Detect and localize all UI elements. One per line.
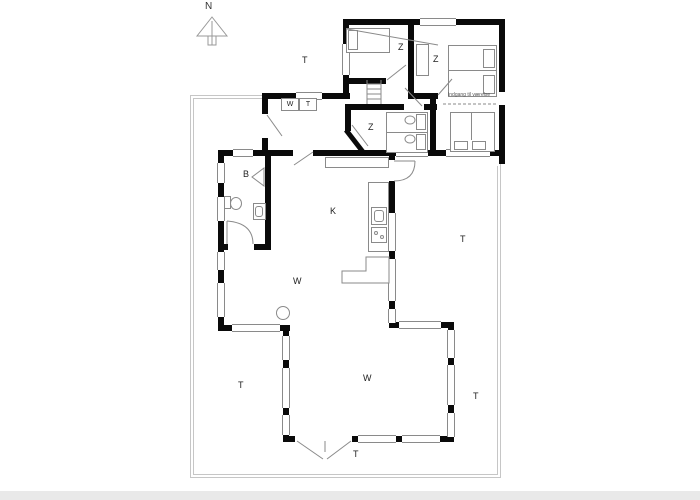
footer-strip (0, 491, 700, 500)
bunk-bed-diagonal (347, 29, 438, 45)
door-swing-entrance (267, 115, 282, 136)
living-label-upper: W (293, 277, 302, 286)
duvet (405, 116, 415, 124)
dryer-label: T (299, 98, 317, 111)
compass-label: N (205, 2, 212, 12)
shower-corner-shelf (252, 168, 264, 186)
door-arc-bathroom (227, 221, 253, 244)
bedroom3-label: Z (368, 123, 374, 132)
door-swing-bedroom3 (405, 88, 422, 106)
door-arc-terrace (394, 161, 415, 181)
terrace-label-bottom-right: T (473, 392, 479, 401)
plan-linework (0, 0, 700, 500)
duvet (405, 135, 415, 143)
kitchen-label: K (330, 207, 336, 216)
french-door-leaf-right (327, 441, 351, 459)
french-door-leaf-left (297, 441, 323, 459)
wall-bedroom3-diagonal (346, 130, 363, 152)
terrace-label-bottom-left: T (238, 381, 244, 390)
terrace-label-top: T (302, 56, 308, 65)
bathroom-label: B (243, 170, 249, 179)
bedroom1-label: Z (398, 43, 404, 52)
washer-label: W (281, 98, 299, 111)
terrace-label-bottom-center: T (353, 450, 359, 459)
floor-plan: N T Z Z Z W T B K W W T T T T Indgang ti… (0, 0, 700, 500)
kitchen-counter-island (342, 257, 389, 283)
living-label-lower: W (363, 374, 372, 383)
terrace-label-right: T (460, 235, 466, 244)
bedroom2-label: Z (433, 55, 439, 64)
door-swing-bedroom1 (387, 65, 406, 80)
loft-ladder (367, 80, 381, 104)
door-swing-living (294, 152, 313, 165)
annex-entrance-note: Indgang til værelse (438, 93, 500, 98)
